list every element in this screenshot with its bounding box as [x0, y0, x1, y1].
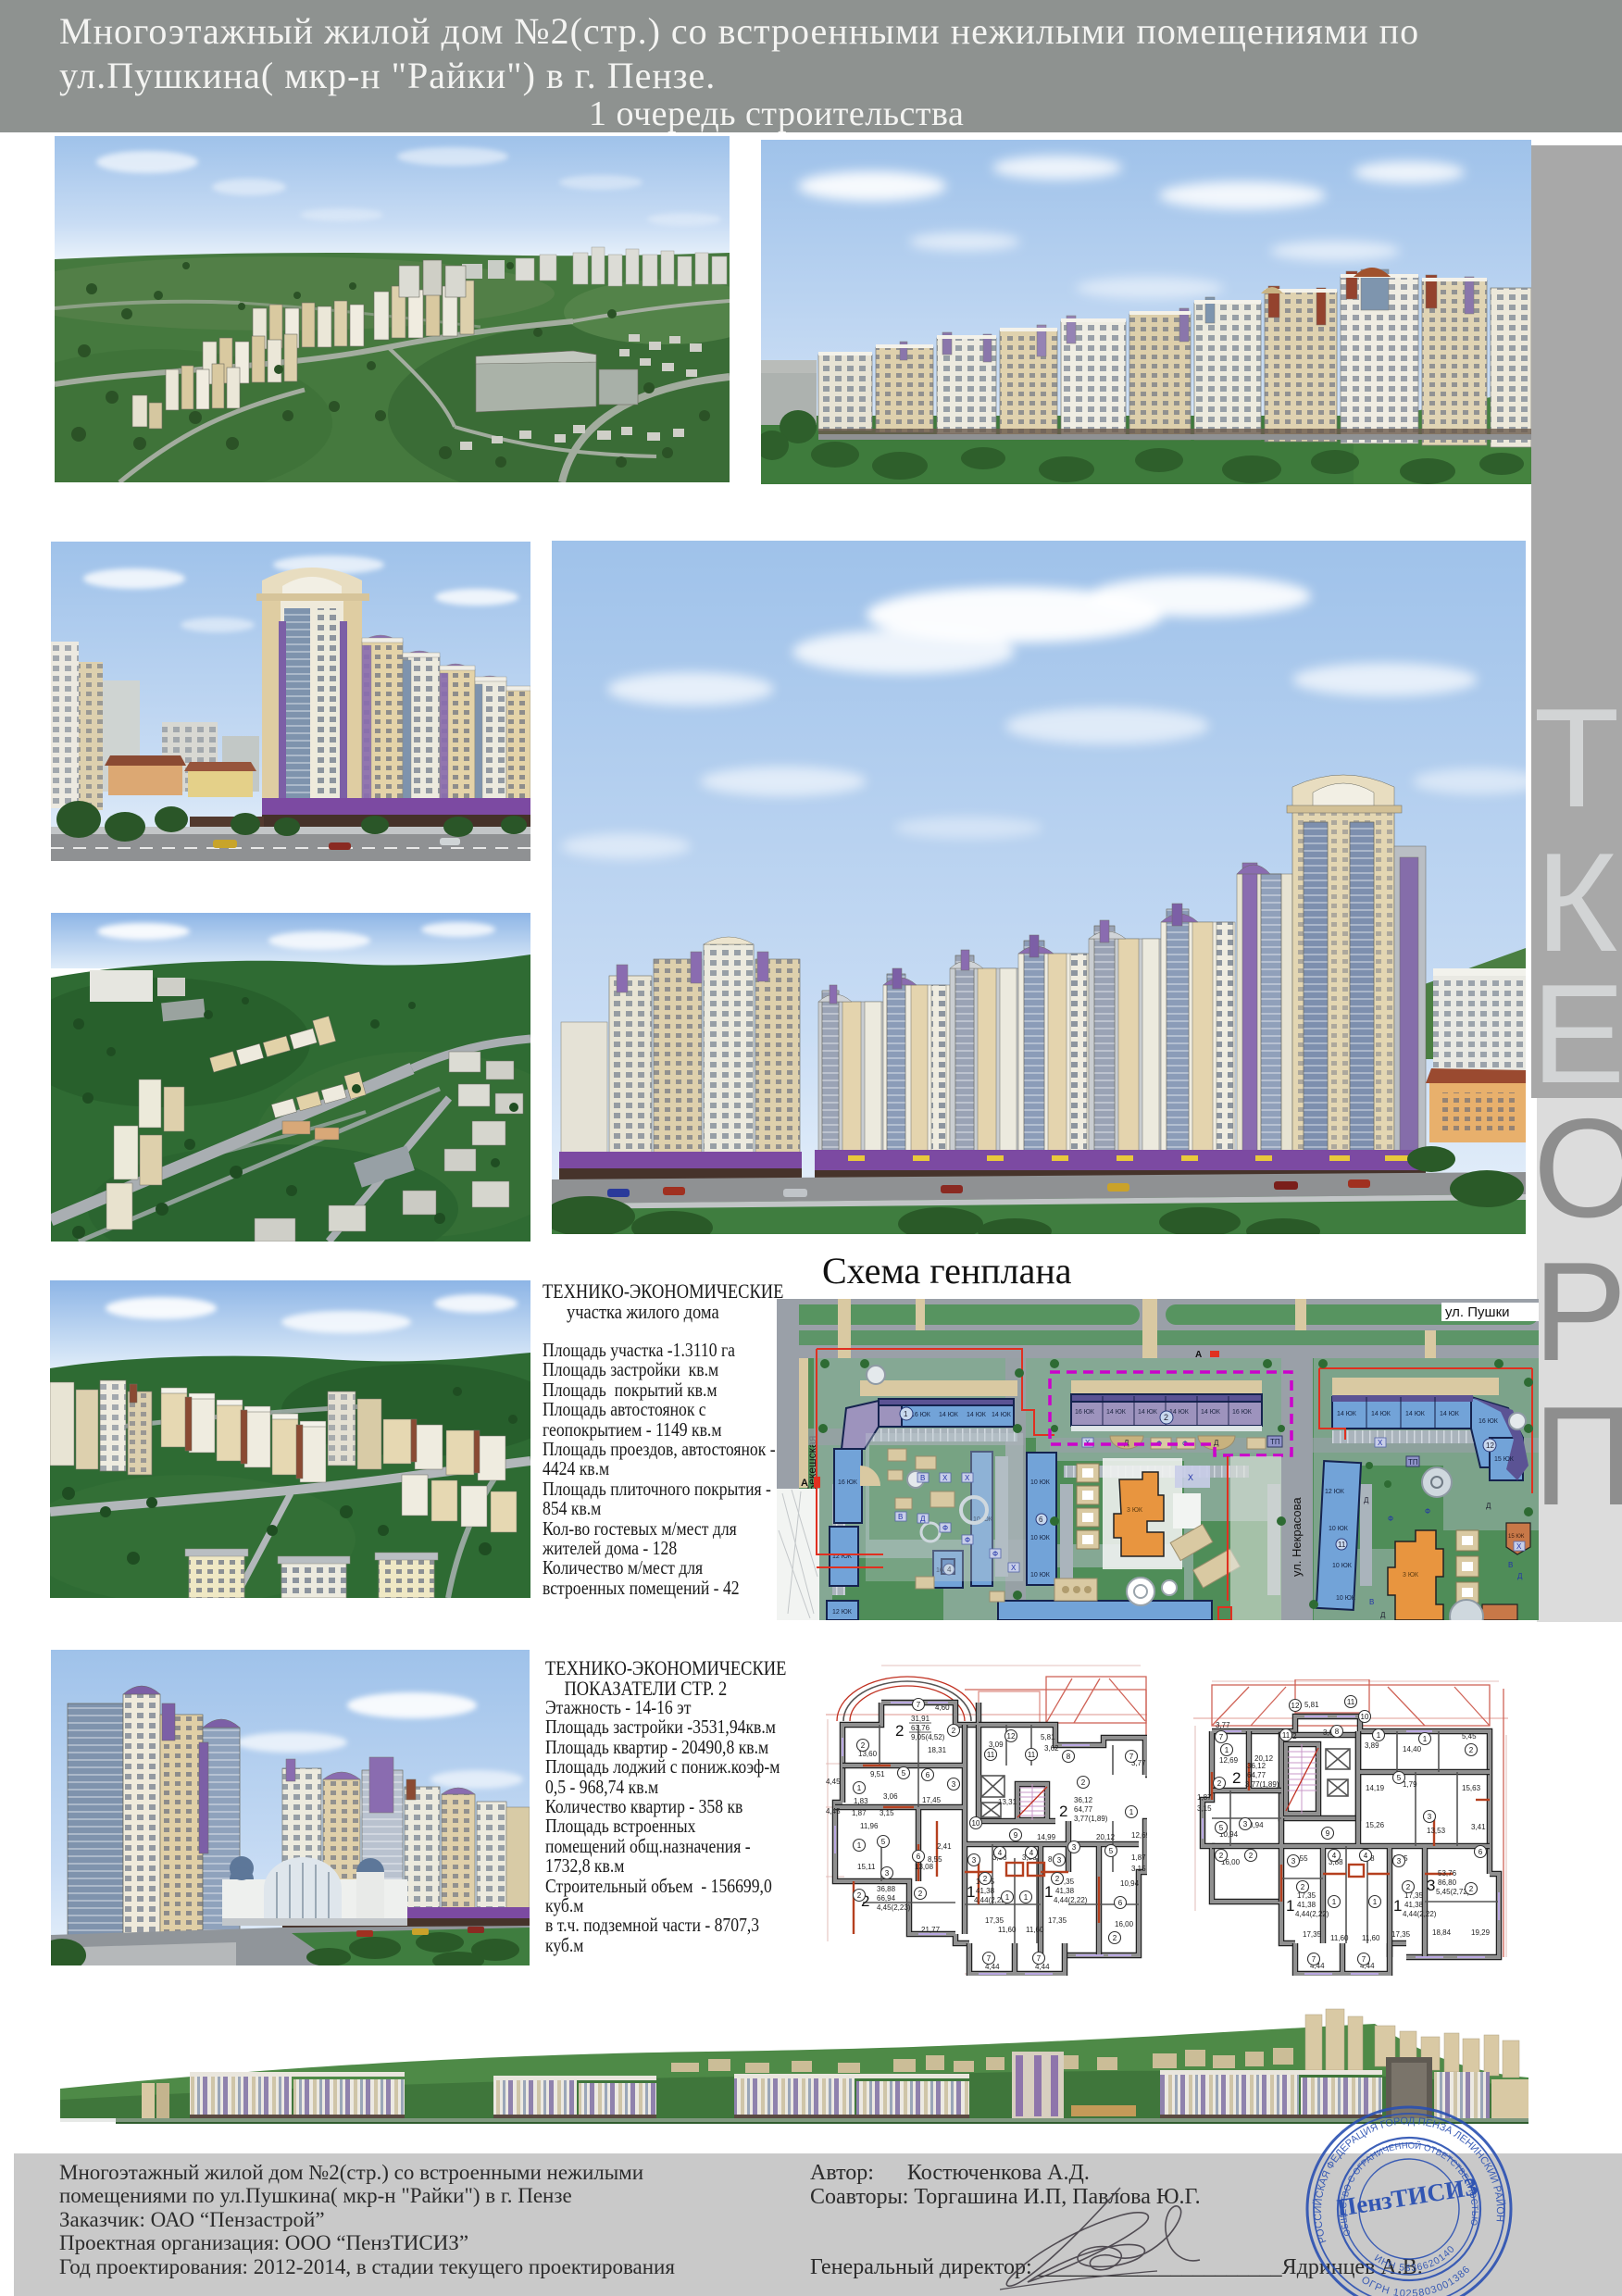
svg-text:10 ЮК: 10 ЮК [1329, 1526, 1349, 1532]
svg-text:63,76: 63,76 [911, 1724, 930, 1732]
svg-text:Х: Х [1378, 1439, 1383, 1447]
svg-text:4,44(2,22): 4,44(2,22) [1054, 1896, 1088, 1904]
svg-text:ТП: ТП [1270, 1438, 1280, 1446]
svg-text:11: 11 [1347, 1698, 1355, 1706]
svg-text:2: 2 [952, 1727, 956, 1735]
svg-text:4: 4 [1364, 1852, 1368, 1860]
svg-text:31,91: 31,91 [911, 1715, 930, 1723]
svg-text:8,55: 8,55 [928, 1855, 942, 1864]
svg-text:1: 1 [1373, 1898, 1378, 1906]
svg-text:3,77(1,89): 3,77(1,89) [1074, 1815, 1108, 1823]
svg-text:3,77(1,89): 3,77(1,89) [1245, 1780, 1279, 1789]
svg-text:3: 3 [1072, 1843, 1077, 1852]
svg-text:ул. Пушки: ул. Пушки [1445, 1304, 1510, 1320]
svg-text:36,12: 36,12 [1074, 1796, 1093, 1804]
svg-text:86,80: 86,80 [1438, 1878, 1457, 1887]
svg-text:6: 6 [1118, 1899, 1123, 1907]
svg-text:2: 2 [918, 1890, 923, 1898]
svg-text:1: 1 [1005, 1893, 1010, 1902]
svg-text:18,84: 18,84 [1432, 1928, 1452, 1937]
svg-text:Ф: Ф [965, 1536, 970, 1544]
svg-text:41,38: 41,38 [1055, 1887, 1075, 1895]
svg-text:10 ЮК: 10 ЮК [1336, 1595, 1356, 1602]
svg-text:3 ЮК: 3 ЮК [1403, 1572, 1419, 1578]
svg-text:14 ЮК: 14 ЮК [1405, 1411, 1426, 1417]
svg-text:5: 5 [1219, 1824, 1224, 1832]
svg-text:15,11: 15,11 [857, 1863, 876, 1871]
svg-text:1: 1 [1024, 1893, 1029, 1902]
svg-text:3: 3 [952, 1780, 956, 1789]
svg-text:9,51: 9,51 [870, 1770, 885, 1778]
svg-text:11: 11 [1028, 1751, 1036, 1759]
svg-text:16,00: 16,00 [1115, 1920, 1134, 1928]
svg-text:15,63: 15,63 [1462, 1784, 1481, 1792]
svg-text:1,87: 1,87 [1197, 1793, 1212, 1802]
svg-text:14,40: 14,40 [1403, 1745, 1422, 1753]
svg-text:17,35: 17,35 [985, 1916, 1004, 1925]
svg-text:10 ЮК: 10 ЮК [1030, 1535, 1051, 1541]
svg-text:2: 2 [861, 1741, 866, 1750]
svg-text:3: 3 [1291, 1857, 1296, 1865]
svg-text:64,77: 64,77 [1074, 1805, 1093, 1814]
svg-text:4: 4 [1332, 1852, 1337, 1860]
svg-text:41,38: 41,38 [1404, 1901, 1424, 1909]
svg-text:14 ЮК: 14 ЮК [939, 1412, 959, 1418]
svg-text:Д: Д [920, 1515, 926, 1523]
svg-text:2: 2 [1217, 1779, 1222, 1788]
svg-text:2: 2 [1059, 1803, 1067, 1820]
svg-text:3,77: 3,77 [1216, 1721, 1230, 1729]
svg-text:14,19: 14,19 [1366, 1784, 1385, 1792]
svg-text:4,60: 4,60 [935, 1703, 950, 1712]
svg-text:7: 7 [1312, 1955, 1316, 1964]
svg-text:15 ЮК: 15 ЮК [1494, 1456, 1515, 1463]
svg-text:16 ЮК: 16 ЮК [1479, 1418, 1499, 1425]
svg-text:14 ЮК: 14 ЮК [1201, 1409, 1221, 1416]
svg-text:5: 5 [881, 1838, 886, 1846]
svg-text:4,45: 4,45 [826, 1807, 841, 1816]
svg-text:14 ЮК: 14 ЮК [1440, 1411, 1460, 1417]
svg-text:2: 2 [1469, 1746, 1474, 1754]
svg-text:17,45: 17,45 [922, 1796, 942, 1804]
svg-text:4: 4 [1029, 1849, 1034, 1857]
svg-text:Д: Д [1364, 1496, 1369, 1504]
svg-text:21,77: 21,77 [921, 1926, 941, 1934]
svg-text:2: 2 [1081, 1778, 1086, 1787]
svg-text:1: 1 [1423, 1735, 1428, 1743]
svg-text:20,12: 20,12 [1096, 1833, 1116, 1841]
svg-text:Х: Х [965, 1474, 970, 1482]
svg-text:3,15: 3,15 [880, 1809, 894, 1817]
svg-text:2: 2 [895, 1722, 904, 1740]
svg-text:12: 12 [1486, 1441, 1494, 1450]
svg-text:6: 6 [1479, 1848, 1483, 1856]
svg-text:Ф: Ф [1388, 1515, 1393, 1523]
svg-text:10 ЮК: 10 ЮК [1332, 1563, 1353, 1569]
svg-text:2: 2 [1249, 1852, 1254, 1860]
svg-text:14 ЮК: 14 ЮК [1106, 1409, 1127, 1416]
svg-text:15,26: 15,26 [1366, 1821, 1385, 1829]
svg-text:4: 4 [998, 1849, 1003, 1857]
svg-text:3: 3 [1428, 1813, 1432, 1821]
svg-text:Ф: Ф [942, 1524, 948, 1532]
svg-text:9: 9 [1326, 1829, 1330, 1838]
svg-text:11,60: 11,60 [1026, 1926, 1044, 1934]
svg-text:16 ЮК: 16 ЮК [838, 1479, 858, 1486]
svg-text:41,38: 41,38 [976, 1887, 995, 1895]
svg-text:5,45: 5,45 [1462, 1732, 1477, 1741]
svg-text:18,31: 18,31 [928, 1746, 947, 1754]
svg-text:10: 10 [972, 1819, 980, 1828]
svg-text:1,87: 1,87 [1131, 1853, 1146, 1862]
svg-text:53,76: 53,76 [1438, 1869, 1457, 1878]
svg-text:5,81: 5,81 [1304, 1701, 1319, 1709]
svg-text:Х: Х [1011, 1564, 1017, 1572]
svg-text:3,15: 3,15 [1197, 1804, 1212, 1813]
svg-text:10 ЮК: 10 ЮК [1030, 1572, 1051, 1578]
svg-text:1: 1 [1332, 1898, 1337, 1906]
svg-text:4,45(2,23): 4,45(2,23) [877, 1903, 911, 1912]
svg-text:4,44(2,22): 4,44(2,22) [1295, 1910, 1329, 1918]
svg-text:Х: Х [942, 1474, 948, 1482]
svg-text:Ф: Ф [992, 1550, 998, 1558]
svg-text:11: 11 [987, 1751, 995, 1759]
svg-text:64,77: 64,77 [1247, 1771, 1266, 1779]
svg-text:3,62: 3,62 [1044, 1744, 1059, 1753]
svg-text:17,35: 17,35 [1048, 1916, 1067, 1925]
svg-text:3: 3 [1427, 1877, 1435, 1894]
svg-text:14 ЮК: 14 ЮК [967, 1412, 987, 1418]
svg-text:7: 7 [917, 1701, 921, 1709]
svg-text:1: 1 [1129, 1808, 1134, 1816]
svg-text:12,69: 12,69 [1131, 1831, 1147, 1840]
svg-text:2: 2 [857, 1891, 862, 1900]
svg-text:2: 2 [1469, 1885, 1474, 1893]
svg-text:2: 2 [1219, 1852, 1224, 1860]
svg-text:11,60: 11,60 [998, 1926, 1017, 1934]
svg-text:А: А [1195, 1350, 1202, 1360]
svg-text:1: 1 [904, 1410, 908, 1418]
svg-text:3: 3 [885, 1869, 890, 1878]
svg-text:9: 9 [1014, 1831, 1018, 1840]
svg-text:В: В [1508, 1561, 1513, 1569]
svg-text:11,96: 11,96 [860, 1822, 879, 1830]
svg-text:2: 2 [1113, 1934, 1117, 1942]
svg-text:11,60: 11,60 [1362, 1934, 1380, 1942]
svg-text:36,88: 36,88 [877, 1885, 896, 1893]
svg-text:3,41: 3,41 [1471, 1823, 1486, 1831]
svg-text:7: 7 [1129, 1753, 1134, 1761]
svg-text:17,35: 17,35 [1391, 1930, 1411, 1939]
svg-text:1: 1 [1393, 1897, 1402, 1915]
svg-text:Х: Х [1516, 1542, 1522, 1551]
svg-text:2: 2 [1164, 1413, 1168, 1422]
svg-text:ТП: ТП [1408, 1458, 1418, 1466]
svg-text:11,60: 11,60 [1330, 1934, 1349, 1942]
svg-text:7: 7 [987, 1954, 992, 1963]
svg-text:3: 3 [1397, 1857, 1402, 1865]
svg-text:В: В [898, 1513, 903, 1521]
svg-text:12: 12 [1007, 1732, 1016, 1741]
svg-text:19,29: 19,29 [1471, 1928, 1491, 1937]
svg-text:2: 2 [983, 1875, 988, 1883]
svg-text:7: 7 [1362, 1955, 1366, 1964]
svg-text:66,94: 66,94 [877, 1894, 896, 1903]
svg-text:1,83: 1,83 [854, 1797, 868, 1805]
svg-text:2: 2 [1232, 1769, 1241, 1787]
svg-text:Ф: Ф [1425, 1507, 1430, 1516]
svg-text:3,06: 3,06 [883, 1792, 898, 1801]
svg-text:Д: Д [1486, 1502, 1491, 1510]
svg-text:В: В [1369, 1598, 1374, 1606]
svg-text:1: 1 [1377, 1731, 1381, 1740]
svg-text:13,53: 13,53 [1427, 1827, 1446, 1835]
svg-text:5,81: 5,81 [1041, 1733, 1055, 1741]
svg-text:13,31: 13,31 [998, 1798, 1017, 1806]
svg-text:1: 1 [857, 1784, 862, 1792]
svg-text:ул. Некрасова: ул. Некрасова [1290, 1497, 1304, 1577]
svg-text:16 ЮК: 16 ЮК [1075, 1409, 1095, 1416]
svg-text:6: 6 [926, 1771, 930, 1779]
svg-text:Д: Д [1380, 1611, 1386, 1619]
svg-text:10,94: 10,94 [1120, 1879, 1140, 1888]
svg-text:3,15: 3,15 [1131, 1865, 1146, 1873]
svg-text:12 ЮК: 12 ЮК [1325, 1489, 1345, 1495]
svg-text:9,05(4,52): 9,05(4,52) [911, 1733, 945, 1741]
svg-text:3: 3 [1057, 1856, 1062, 1865]
svg-text:4,45: 4,45 [826, 1778, 841, 1786]
svg-text:14 ЮК: 14 ЮК [1337, 1411, 1357, 1417]
svg-text:6: 6 [1039, 1516, 1043, 1524]
svg-text:3: 3 [1243, 1820, 1248, 1828]
svg-text:4,44(2,22): 4,44(2,22) [1403, 1910, 1437, 1918]
svg-text:В: В [920, 1474, 925, 1482]
svg-text:2,41: 2,41 [937, 1842, 952, 1851]
svg-text:Д: Д [1214, 1439, 1219, 1447]
svg-text:1: 1 [857, 1841, 862, 1850]
svg-text:41,38: 41,38 [1297, 1901, 1316, 1909]
svg-text:14 ЮК: 14 ЮК [992, 1412, 1012, 1418]
svg-text:5: 5 [902, 1769, 906, 1778]
svg-text:1: 1 [1225, 1746, 1229, 1754]
svg-text:10: 10 [1361, 1713, 1369, 1721]
svg-text:16 ЮК: 16 ЮК [911, 1412, 931, 1418]
svg-text:7: 7 [1037, 1954, 1042, 1963]
svg-text:12: 12 [1291, 1702, 1300, 1710]
svg-text:5: 5 [1397, 1774, 1402, 1782]
svg-text:14,99: 14,99 [1037, 1833, 1056, 1841]
svg-text:8: 8 [1067, 1753, 1071, 1761]
svg-text:2: 2 [1406, 1883, 1411, 1891]
svg-text:17,35: 17,35 [1303, 1930, 1322, 1939]
svg-text:2: 2 [1055, 1875, 1060, 1883]
svg-text:3,09: 3,09 [989, 1741, 1004, 1749]
svg-text:1: 1 [1044, 1883, 1053, 1901]
svg-text:13,08: 13,08 [915, 1863, 934, 1871]
svg-text:Д: Д [1517, 1572, 1523, 1580]
svg-text:1,87: 1,87 [852, 1809, 867, 1817]
svg-text:1: 1 [1286, 1897, 1294, 1915]
svg-text:6: 6 [917, 1853, 921, 1861]
svg-text:5: 5 [1109, 1847, 1114, 1855]
svg-text:11: 11 [1338, 1541, 1346, 1549]
svg-text:1,79: 1,79 [1403, 1780, 1417, 1789]
svg-text:3 ЮК: 3 ЮК [1127, 1507, 1143, 1514]
svg-text:10 ЮК: 10 ЮК [1030, 1479, 1051, 1486]
svg-text:36,12: 36,12 [1247, 1762, 1266, 1770]
svg-text:20,12: 20,12 [1254, 1754, 1274, 1763]
svg-text:16 ЮК: 16 ЮК [1232, 1409, 1253, 1416]
svg-text:12,69: 12,69 [1219, 1756, 1239, 1765]
svg-text:8: 8 [1335, 1728, 1340, 1736]
svg-text:А: А [801, 1478, 808, 1489]
svg-text:12 ЮК: 12 ЮК [832, 1609, 853, 1616]
svg-text:15 КЖ: 15 КЖ [1508, 1534, 1525, 1540]
svg-text:Х: Х [1188, 1473, 1193, 1482]
svg-text:3: 3 [972, 1856, 977, 1865]
svg-text:2: 2 [1301, 1883, 1305, 1891]
svg-text:14 ЮК: 14 ЮК [1138, 1409, 1158, 1416]
svg-text:7: 7 [1219, 1733, 1224, 1741]
svg-text:14 ЮК: 14 ЮК [1371, 1411, 1391, 1417]
svg-text:3,89: 3,89 [1365, 1741, 1379, 1750]
svg-text:11: 11 [1282, 1731, 1291, 1740]
